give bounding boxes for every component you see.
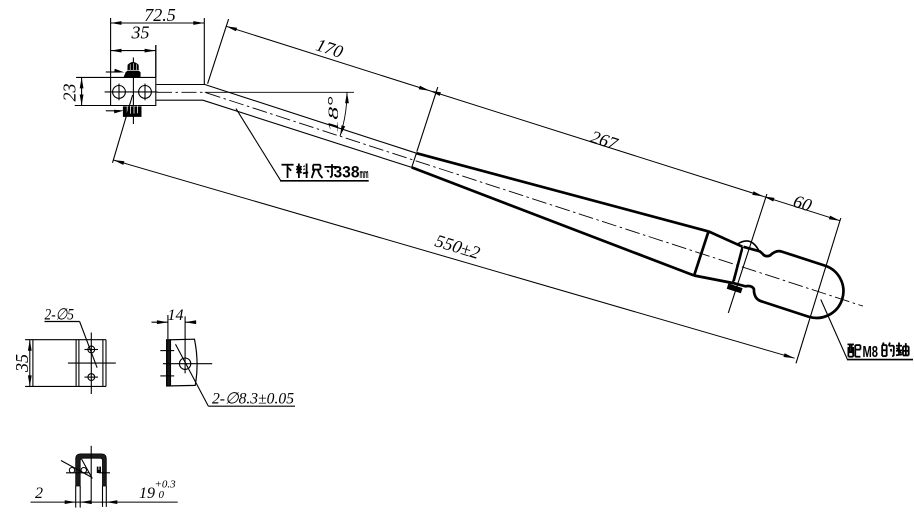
svg-text:mm: mm [360,167,369,181]
svg-text:M8: M8 [863,344,879,361]
svg-text:14: 14 [168,307,184,324]
svg-text:0: 0 [159,489,165,501]
svg-text:19: 19 [139,485,155,502]
svg-text:18°: 18° [326,96,342,132]
svg-text:2-∅8.3±0.05: 2-∅8.3±0.05 [212,391,294,408]
svg-text:23: 23 [60,84,80,102]
svg-text:2: 2 [35,485,43,502]
svg-text:35: 35 [131,23,150,43]
svg-text:338: 338 [334,163,360,182]
svg-text:35: 35 [12,354,32,373]
